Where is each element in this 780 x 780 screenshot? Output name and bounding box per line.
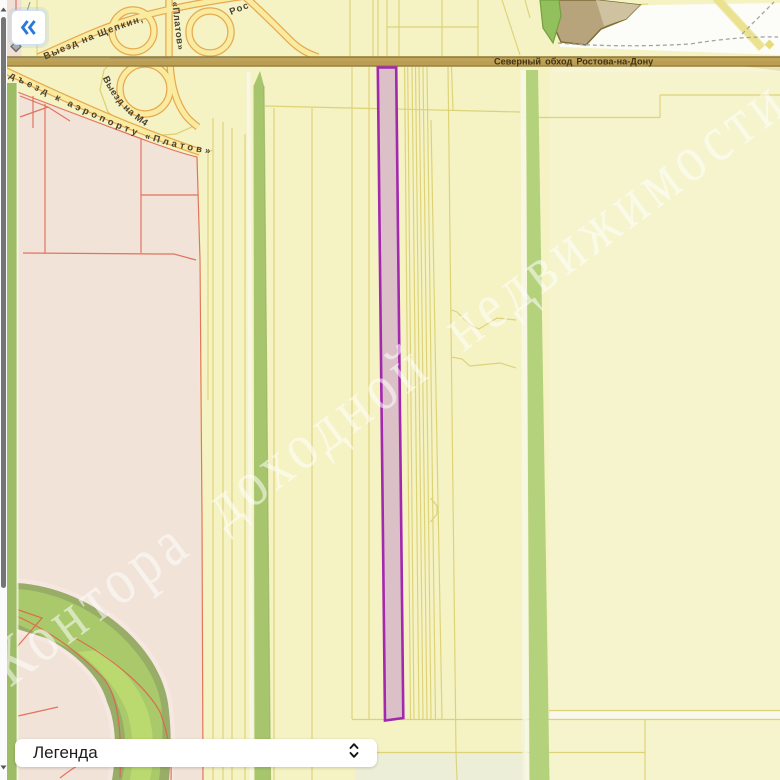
svg-text:Северный обход Ростова-на-Дону: Северный обход Ростова-на-Дону	[494, 57, 654, 67]
